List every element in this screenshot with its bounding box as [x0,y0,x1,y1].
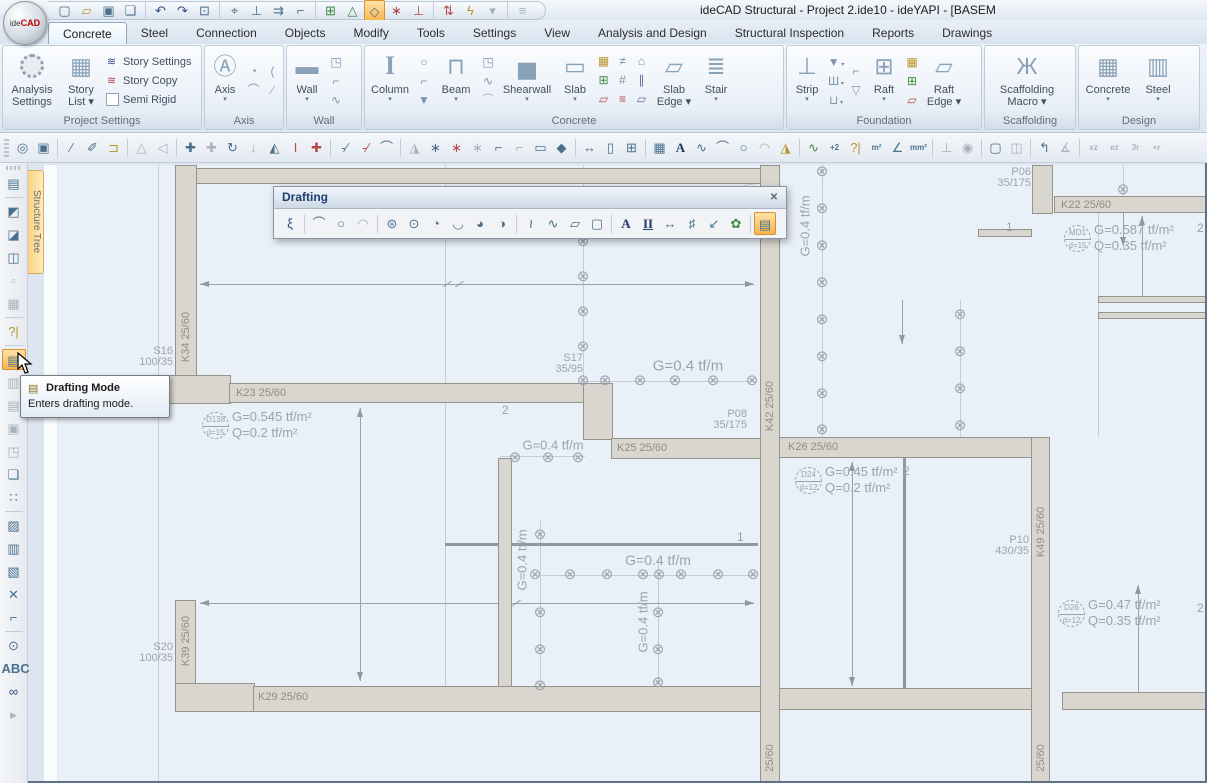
separator [5,511,23,512]
strip-button[interactable]: ⊥Strip▾ [788,47,826,114]
drafting-mode-icon: ▤ [28,382,38,395]
separator [330,139,331,157]
dimension-icon[interactable]: ↔ [659,212,681,235]
load-node-symbol: ⊗ [534,642,547,657]
wall-polyline-icon[interactable]: ⌐ [326,72,346,90]
render-icon[interactable]: ▣ [2,418,26,439]
polygon-snap-icon[interactable]: △ [342,0,363,22]
load-node-symbol: ⊗ [542,450,555,465]
ellipse-center-icon[interactable]: ⊙ [403,212,425,235]
analysis-settings-icon [20,48,44,84]
axis-number: 1 [737,530,744,544]
dimension-arrow [200,281,209,287]
load-node-symbol: ⊗ [712,567,725,582]
select-table-icon[interactable]: ▦ [2,293,26,314]
text-icon[interactable]: A [615,212,637,235]
wall-segment [1032,165,1053,214]
story-list-button[interactable]: ▦StoryList ▾ [60,47,102,114]
group-label: Wall [287,114,361,129]
move-copy-icon[interactable]: ✚ [201,137,222,159]
beam-icon: ⊓ [447,48,465,84]
ribbon-group-axis: ⒶAxis▾◔(⌒∕Axis [204,45,284,130]
analysis-settings-button[interactable]: AnalysisSettings [4,47,60,114]
beam-label: K39 25/60 [180,616,192,666]
separator [400,139,401,157]
slab-hatch-icon[interactable]: # [613,71,632,90]
redo-icon[interactable]: ↷ [172,0,193,22]
plant-icon[interactable]: ✿ [725,212,747,235]
drafting-toolbar: Drafting ✕ ξ⌒○◠⊜⊙◔◡◕◑≀∿▱▢AII↔♯↙✿▤ [273,186,787,239]
solid-view-icon[interactable]: ◮ [404,137,425,159]
slab-corner-icon[interactable]: ▱ [594,90,613,109]
slab-stairs-icon[interactable]: ≡ [613,90,632,109]
separator [377,215,378,233]
cloud-icon[interactable]: ◠ [754,137,775,159]
curved-beam-icon[interactable]: ∿ [478,72,498,90]
wave-icon[interactable]: ∿ [542,212,564,235]
save-icon[interactable]: ▣ [98,0,119,22]
new-window-icon[interactable]: ▢ [985,137,1006,159]
ribbon-group-concrete: IColumn▾○⌐▼⊓Beam▾◳∿⌒▅Shearwall▾▭Slab▾▦≠⌂… [364,45,784,130]
tab-objects[interactable]: Objects [271,22,340,44]
trim-icon[interactable]: -∕ [334,137,355,159]
axis-number: 1 [1006,220,1013,234]
design-concrete-button[interactable]: ▦Concrete▾ [1080,47,1136,114]
wall-panel-icon[interactable]: ◳ [326,53,346,71]
raft-edge-icon: ▱ [935,48,953,84]
profile-corner-icon[interactable]: ⌐ [2,607,26,628]
area-m2-icon[interactable]: m² [866,137,887,159]
area-load-label: MD1d=15G=0.587 tf/m²Q=0.35 tf/m² [1064,225,1091,252]
group-label: Axis [205,114,283,129]
area-load-tag: MD1d=15 [1064,225,1091,252]
extend-icon[interactable]: -∕ [355,137,376,159]
spline-icon[interactable]: ≀ [520,212,542,235]
hatch-icon[interactable]: ▨ [2,515,26,536]
wall-curve-icon[interactable]: ∿ [326,91,346,109]
corner-footing-icon[interactable]: ⌐ [846,62,866,80]
select-add-icon[interactable]: ◪ [2,224,26,245]
load-node-symbol: ⊗ [534,605,547,620]
separator [219,2,220,20]
rotate-icon[interactable]: ↻ [222,137,243,159]
select-chain-icon[interactable]: ◫ [2,247,26,268]
tab-reports[interactable]: Reports [858,22,928,44]
view-xz-icon[interactable]: xz [1083,137,1104,159]
slab-label: S20100/35 [111,642,173,664]
beam-label: K23 25/60 [236,387,286,399]
break-icon[interactable]: ∗ [446,137,467,159]
axis-line [445,165,446,689]
erase-line-icon[interactable]: ✕ [2,584,26,605]
tooltip: ▤ Drafting Mode Enters drafting mode. [20,375,170,418]
drafting-mode-icon[interactable]: ▤ [754,212,776,235]
select-building-icon[interactable]: ⌖ [224,0,245,22]
slab-icon: ▭ [564,48,586,84]
pile-icon[interactable]: Ш ▾ [826,72,846,90]
tab-settings[interactable]: Settings [459,22,530,44]
main-toolbar: ◎▣∕✐⊐△◁✚✚↻↓◭I✚-∕-∕⌒◮∗∗∗⌐⌐▭◆↔▯⊞▦A∿⌒○◠◮∿+2… [0,133,1207,163]
load-node-symbol: ⊗ [746,373,759,388]
separator [516,215,517,233]
line-load-label: G=0.4 tf/m [636,591,651,652]
line-load-label: G=0.4 tf/m [515,529,530,590]
tab-structural-inspection[interactable]: Structural Inspection [721,22,858,44]
undo-icon[interactable]: ↶ [150,0,171,22]
dimension-arrow [357,408,363,417]
minimize-ribbon-icon[interactable]: ≡ [512,0,533,22]
measure-pick-icon[interactable]: ∕ [61,137,82,159]
separator [507,2,508,20]
view-z-icon[interactable]: ez [1104,137,1125,159]
slab-label: S1735/95 [521,353,583,375]
point-grid-icon[interactable]: ∷ [2,487,26,508]
story-settings-icon: ≋ [104,55,119,68]
semi-rigid-icon [106,93,119,106]
dimension-line [360,408,361,681]
separator [145,2,146,20]
structure-tree-icon[interactable]: ▤ [2,173,26,194]
mirror-icon[interactable]: ◭ [264,137,285,159]
toolbar-grip [4,139,9,157]
raft-fill-icon[interactable]: ▦ [902,53,922,71]
auto-label-icon[interactable]: ABC [2,658,26,679]
slab-ramp-icon[interactable]: ≠ [613,52,632,71]
edit-region-icon[interactable]: ▭ [530,137,551,159]
load-node-symbol: ⊗ [601,567,614,582]
load-node-symbol: ⊗ [954,418,967,433]
drafting-toolbar-titlebar[interactable]: Drafting ✕ [274,187,786,209]
slab-label: P10430/35 [967,535,1029,557]
slab-posts-icon[interactable]: ∥ [632,71,651,90]
app-logo-button[interactable]: ideCAD [3,1,47,45]
dimension-vertical-icon[interactable]: ♯ [681,212,703,235]
zoom-window-icon[interactable]: ▣ [33,137,54,159]
grid-icon[interactable]: ⊞ [621,137,642,159]
open-file-icon[interactable]: ▱ [76,0,97,22]
visibility-icon[interactable]: ◉ [957,137,978,159]
offset-icon[interactable]: +2 [824,137,845,159]
axis-line [158,165,159,781]
view-3d-icon[interactable]: 3r [1125,137,1146,159]
ribbon-group-foundation: ⊥Strip▾▼ ▾Ш ▾⊔ ▾⌐▽⊞Raft▾▦⊞▱▱RaftEdge ▾Fo… [786,45,982,130]
drafting-toolbar-icons: ξ⌒○◠⊜⊙◔◡◕◑≀∿▱▢AII↔♯↙✿▤ [274,209,786,238]
snap-perpendicular-icon[interactable]: ⊥ [408,0,429,22]
hopper-icon[interactable]: ▽ [846,81,866,99]
arc-icon[interactable]: ⌒ [308,212,330,235]
find-replace-icon[interactable]: ⊙ [2,635,26,656]
dimension-arrow [1135,585,1141,594]
binoculars-icon[interactable]: ∞ [2,681,26,702]
cloud-icon[interactable]: ◠ [352,212,374,235]
slab-edge-button[interactable]: ▱SlabEdge ▾ [651,47,697,114]
separator [1079,139,1080,157]
load-node-symbol: ⊗ [675,567,688,582]
load-node-symbol: ⊗ [577,339,590,354]
area-load-label: D24d=12G=0.45 tf/m²Q=0.2 tf/m² [795,467,822,494]
circle-icon[interactable]: ○ [330,212,352,235]
grid-snap-icon[interactable]: ⊞ [320,0,341,22]
separator [645,139,646,157]
divide-icon[interactable]: ∗ [425,137,446,159]
close-icon[interactable]: ✕ [766,190,782,205]
separator [315,2,316,20]
axis-number: 2 [1197,221,1204,235]
separator [575,139,576,157]
slab-fill-icon[interactable]: ▦ [594,52,613,71]
fillet-arc-icon[interactable]: ⌒ [376,137,397,159]
scaffolding-macro-icon: Ж [1016,48,1037,84]
beam-label: 25/60 [1035,744,1047,772]
canvas-margin [44,165,58,781]
load-display-icon[interactable]: ⇅ [438,0,459,22]
curve-axis-icon[interactable]: ⌒ [244,81,263,100]
separator [932,139,933,157]
window-title: ideCAD Structural - Project 2.ide10 - id… [700,3,996,17]
column-text-icon[interactable]: II [637,212,659,235]
leader-text-icon[interactable]: ↙ [703,212,725,235]
measure-question-icon[interactable]: ?| [2,321,26,342]
select-window-icon[interactable]: ▫ [2,270,26,291]
load-node-symbol: ⊗ [954,307,967,322]
circular-axis-icon[interactable]: ◔ [244,62,263,81]
polyline-edit-icon[interactable]: ∿ [803,137,824,159]
circular-column-icon[interactable]: ○ [414,53,434,71]
solid-icon[interactable]: ◮ [775,137,796,159]
shearwall-icon: ▅ [518,48,536,84]
beam-3d-icon[interactable]: ◳ [478,53,498,71]
wall-segment [253,686,761,712]
area-load-tag: D24d=12 [795,467,822,494]
load-node-symbol: ⊗ [816,422,829,437]
ground-level-icon[interactable]: ⊥ [246,0,267,22]
axis-line [903,458,906,688]
dimension-arrow [357,672,363,681]
wall-segment [978,229,1032,237]
axis-number: 2 [903,464,910,478]
beam-label: K25 25/60 [617,442,667,454]
angle-icon[interactable]: ∠ [887,137,908,159]
wall-segment [779,688,1033,710]
shift-story-icon[interactable]: ⇉ [268,0,289,22]
note-flag-icon[interactable]: ⊐ [103,137,124,159]
tab-drawings[interactable]: Drawings [928,22,1006,44]
undo-view-icon[interactable]: ⊡ [194,0,215,22]
snap-node-icon[interactable]: ∗ [386,0,407,22]
run-analysis-icon[interactable]: ϟ [460,0,481,22]
pie-icon[interactable]: ◔ [425,212,447,235]
load-node-symbol: ⊗ [599,373,612,388]
wall-segment [583,383,613,440]
story-settings-button[interactable]: ≋Story Settings [104,53,191,71]
column-button[interactable]: IColumn▾ [366,47,414,114]
load-node-symbol: ⊗ [509,450,522,465]
intersect-icon[interactable]: ∗ [467,137,488,159]
pad-footing-icon[interactable]: ▼ ▾ [826,53,846,71]
arc-beam-icon[interactable]: ⌒ [478,91,498,109]
orient-icon[interactable]: ◁ [152,137,173,159]
polygon-icon[interactable]: ▱ [564,212,586,235]
arc-center-icon[interactable]: ◕ [469,212,491,235]
move-icon[interactable]: ✚ [180,137,201,159]
separator [799,139,800,157]
fillet-corner-icon[interactable]: ⌐ [488,137,509,159]
arc-icon[interactable]: ⌒ [712,137,733,159]
slab-span-icon[interactable]: ⊞ [594,71,613,90]
load-node-symbol: ⊗ [816,312,829,327]
save-all-icon[interactable]: ❏ [120,0,141,22]
separator [750,215,751,233]
dimension-arrow [899,335,905,344]
wall-segment [175,168,762,184]
load-node-symbol: ⊗ [747,567,760,582]
slab-edge-icon: ▱ [665,48,683,84]
line-axis-icon[interactable]: ∕ [263,81,282,100]
wall-button[interactable]: ▬Wall▾ [288,47,326,114]
axis-tool-icon[interactable]: △ [131,137,152,159]
tab-modify[interactable]: Modify [339,22,402,44]
load-node-symbol: ⊗ [577,304,590,319]
load-node-symbol: ⊗ [652,642,665,657]
measure-question-icon[interactable]: ?| [845,137,866,159]
move-story-icon[interactable]: ↓ [243,137,264,159]
region-icon[interactable]: ▢ [586,212,608,235]
array-icon[interactable]: ✚ [306,137,327,159]
wall-segment [1098,312,1205,319]
tab-tools[interactable]: Tools [403,22,459,44]
shearwall-button[interactable]: ▅Shearwall▾ [498,47,556,114]
qat-more-icon[interactable]: ▾ [482,0,503,22]
ucs-rotate-icon[interactable]: ↰ [1034,137,1055,159]
magic-wand-icon[interactable]: ◆ [551,137,572,159]
raft-span-icon[interactable]: ⊞ [902,72,922,90]
spline-icon[interactable]: ∿ [691,137,712,159]
stair-button[interactable]: ≣Stair▾ [697,47,735,114]
separator [304,215,305,233]
area-mm2-icon[interactable]: mm² [908,137,929,159]
mirror-axis-icon[interactable]: I [285,137,306,159]
select-objects-icon[interactable]: ◩ [2,201,26,222]
expand-toolbar-icon[interactable]: ▸ [2,704,26,725]
load-node-symbol: ⊗ [634,373,647,388]
section-detail-icon[interactable]: ▥ [2,538,26,559]
scaffolding-macro-button[interactable]: ЖScaffoldingMacro ▾ [986,47,1068,114]
wall-segment [1098,296,1205,303]
corner-snap-icon[interactable]: ⌐ [290,0,311,22]
axis-button[interactable]: ⒶAxis▾ [206,47,244,114]
ellipse-icon[interactable]: ⊜ [381,212,403,235]
load-node-symbol: ⊗ [577,269,590,284]
story-copy-icon: ≋ [104,74,119,87]
slab-region-icon[interactable]: ▱ [632,90,651,109]
separator [176,139,177,157]
link-box-icon[interactable]: ◳ [2,441,26,462]
stretch-icon[interactable]: ↔ [579,137,600,159]
load-node-symbol: ⊗ [669,373,682,388]
mouse-cursor [17,352,33,376]
canopy-icon[interactable]: ⌂ [632,52,651,71]
text-icon[interactable]: A [670,137,691,159]
left-toolbar: ▤◩◪◫▫▦?|▤▥▤▣◳❏∷▨▥▧✕⌐⊙ABC∞▸ [0,163,28,783]
beam-label: K34 25/60 [180,312,192,362]
tab-concrete[interactable]: Concrete [48,22,127,44]
slab-button[interactable]: ▭Slab▾ [556,47,594,114]
strip-icon: ⊥ [797,48,817,84]
load-node-symbol: ⊗ [564,567,577,582]
chamfer-icon[interactable]: ⌐ [509,137,530,159]
object-snap-icon[interactable]: ◇ [364,0,385,22]
separator [433,2,434,20]
polygon-column-icon[interactable]: ⌐ [414,72,434,90]
tab-steel[interactable]: Steel [127,22,182,44]
pie-center-icon[interactable]: ◑ [491,212,513,235]
wall-segment [175,683,255,712]
solid-model-icon[interactable]: ▧ [2,561,26,582]
tile-windows-icon[interactable]: ◫ [1006,137,1027,159]
story-copy-button[interactable]: ≋Story Copy [104,72,191,90]
new-file-icon[interactable]: ▢ [54,0,75,22]
load-node-symbol: ⊗ [534,527,547,542]
separator [127,139,128,157]
load-node-symbol: ⊗ [707,373,720,388]
raft-corner-icon[interactable]: ▱ [902,91,922,109]
mushroom-column-icon[interactable]: ▼ [414,91,434,109]
copy-objects-icon[interactable]: ❏ [2,464,26,485]
separator [5,345,23,346]
semi-rigid-checkbox[interactable]: Semi Rigid [104,91,191,109]
axis-number: 2 [1197,601,1204,615]
ribbon: AnalysisSettings▦StoryList ▾≋Story Setti… [0,44,1207,133]
story-list-icon: ▦ [70,48,92,84]
workspace: ▤◩◪◫▫▦?|▤▥▤▣◳❏∷▨▥▧✕⌐⊙ABC∞▸ Structure Tre… [0,163,1207,783]
arc-axis-icon[interactable]: ( [263,62,282,81]
axis-icon: Ⓐ [214,48,237,84]
tab-analysis-and-design[interactable]: Analysis and Design [584,22,721,44]
ucs-3d-icon[interactable]: ∡ [1055,137,1076,159]
drawing-canvas[interactable]: ⊗⊗⊗⊗⊗⊗⊗⊗⊗⊗⊗⊗⊗⊗⊗⊗⊗⊗⊗⊗⊗⊗⊗⊗⊗⊗⊗⊗⊗⊗⊗⊗⊗⊗⊗⊗⊗⊗⊗⊗… [44,165,1205,781]
beam-button[interactable]: ⊓Beam▾ [434,47,478,114]
load-node-symbol: ⊗ [572,450,585,465]
area-load-label: D26d=12G=0.47 tf/m²Q=0.35 tf/m² [1058,600,1085,627]
raft-edge-button[interactable]: ▱RaftEdge ▾ [922,47,966,114]
group-label: Project Settings [3,114,201,129]
zoom-extents-icon[interactable]: ◎ [12,137,33,159]
tab-connection[interactable]: Connection [182,22,271,44]
view-r-icon[interactable]: +r [1146,137,1167,159]
dimension-arrow [745,600,754,606]
design-steel-button[interactable]: ▥Steel▾ [1136,47,1180,114]
raft-button[interactable]: ⊞Raft▾ [866,47,902,114]
circle-icon[interactable]: ○ [733,137,754,159]
image-icon[interactable]: ▦ [649,137,670,159]
quick-access-toolbar: ▢▱▣❏↶↷⊡⌖⊥⇉⌐⊞△◇∗⊥⇅ϟ▾≡ [48,1,546,20]
tab-view[interactable]: View [530,22,584,44]
stair-icon: ≣ [706,48,725,84]
caisson-icon[interactable]: ⊔ ▾ [826,91,846,109]
beam-label: K22 25/60 [1061,199,1111,211]
ribbon-group-wall: ▬Wall▾◳⌐∿Wall [286,45,362,130]
sketch-icon[interactable]: ξ [279,212,301,235]
eyedropper-icon[interactable]: ✐ [82,137,103,159]
tooltip-description: Enters drafting mode. [28,398,162,410]
wall-elevation-icon[interactable]: ▯ [600,137,621,159]
group-label: Design [1079,114,1199,129]
level-mark-icon[interactable]: ⊥ [936,137,957,159]
dimension-line [200,603,754,604]
structure-tree-tab[interactable]: Structure Tree [28,170,44,274]
group-label: Concrete [365,114,783,129]
arc-chord-icon[interactable]: ◡ [447,212,469,235]
